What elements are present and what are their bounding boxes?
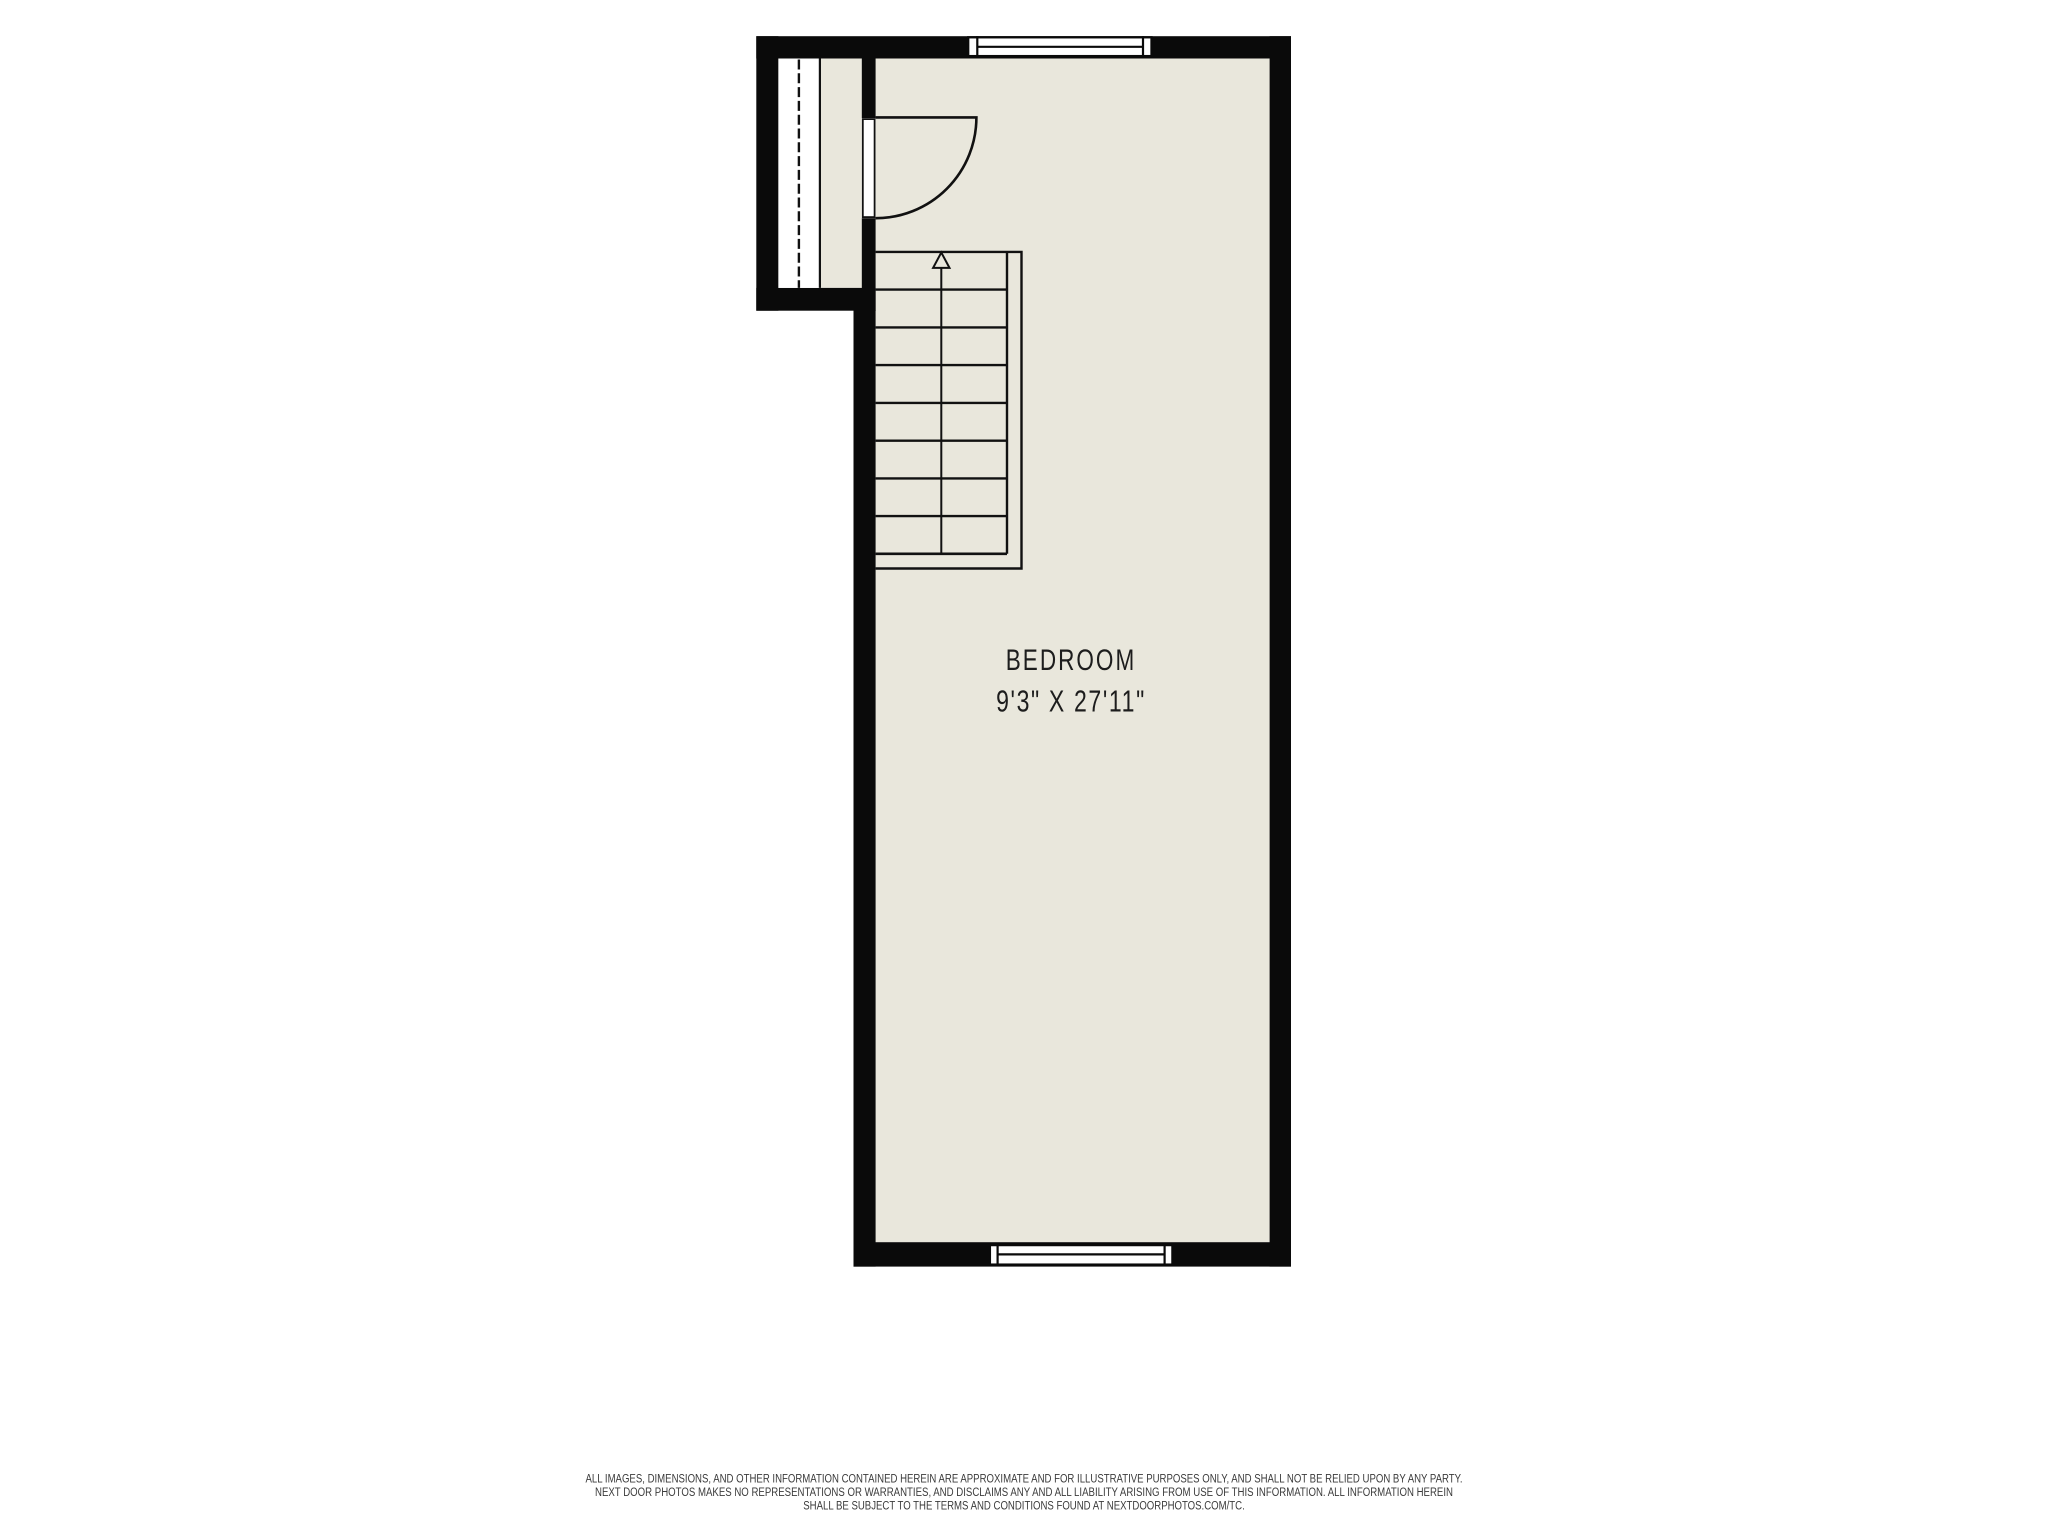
svg-text:BEDROOM: BEDROOM (1006, 643, 1137, 677)
svg-text:NEXT DOOR PHOTOS MAKES NO REPR: NEXT DOOR PHOTOS MAKES NO REPRESENTATION… (595, 1485, 1453, 1499)
svg-text:SHALL BE SUBJECT TO THE TERMS: SHALL BE SUBJECT TO THE TERMS AND CONDIT… (803, 1498, 1245, 1512)
svg-text:ALL IMAGES, DIMENSIONS, AND OT: ALL IMAGES, DIMENSIONS, AND OTHER INFORM… (586, 1471, 1463, 1485)
svg-text:9'3" X 27'11": 9'3" X 27'11" (996, 683, 1146, 718)
